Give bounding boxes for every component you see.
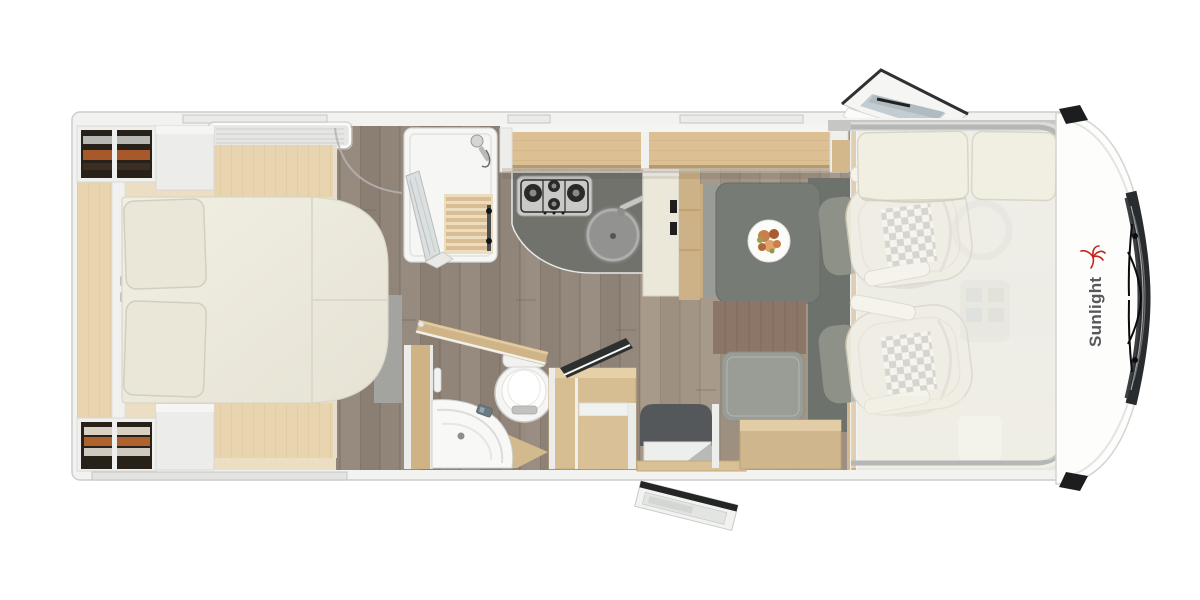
svg-text:Sunlight: Sunlight bbox=[1086, 277, 1105, 347]
